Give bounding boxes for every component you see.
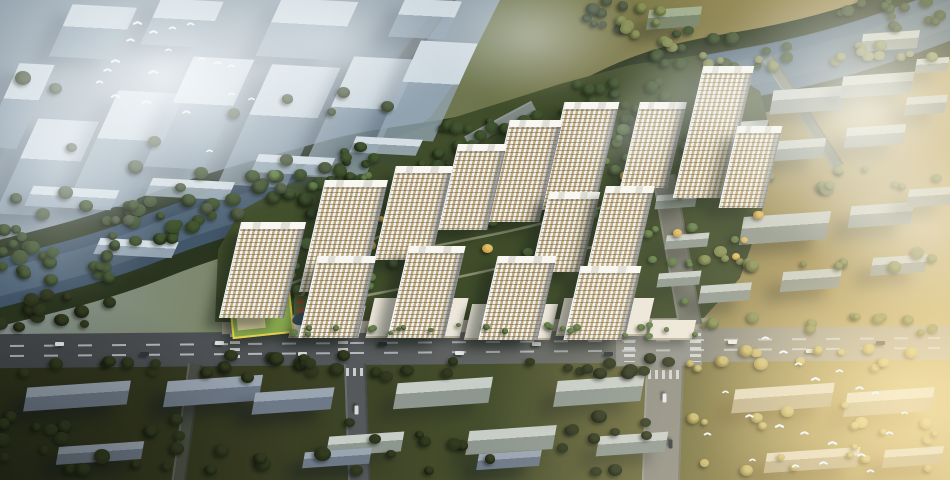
bird-icon — [857, 452, 866, 457]
bird-icon — [95, 79, 103, 84]
bird-icon — [227, 91, 235, 96]
bird-flocks-layer — [0, 0, 950, 480]
bird-icon — [149, 29, 158, 34]
bird-icon — [885, 430, 893, 435]
bird-icon — [749, 458, 756, 462]
bird-icon — [133, 20, 143, 26]
bird-icon — [126, 37, 135, 42]
bird-icon — [775, 423, 785, 429]
bird-icon — [794, 361, 802, 366]
bird-icon — [866, 468, 874, 473]
bird-icon — [227, 63, 235, 68]
bird-icon — [761, 335, 769, 340]
bird-icon — [855, 385, 864, 390]
bird-icon — [141, 99, 152, 105]
bird-icon — [248, 97, 255, 101]
bird-icon — [819, 460, 828, 465]
bird-icon — [111, 93, 121, 99]
bird-icon — [206, 149, 213, 153]
bird-icon — [871, 390, 879, 395]
bird-icon — [186, 21, 194, 26]
bird-icon — [703, 431, 711, 436]
bird-icon — [165, 48, 172, 52]
bird-icon — [103, 67, 112, 72]
bird-icon — [182, 109, 191, 114]
bird-icon — [828, 440, 838, 446]
bird-icon — [835, 368, 843, 373]
bird-icon — [800, 430, 809, 435]
bird-icon — [111, 58, 121, 64]
bird-icon — [811, 376, 821, 382]
bird-icon — [745, 413, 754, 418]
bird-icon — [168, 25, 176, 30]
bird-icon — [213, 60, 222, 65]
bird-icon — [779, 349, 788, 354]
bird-icon — [901, 411, 908, 415]
aerial-city-rendering — [0, 0, 950, 480]
bird-icon — [197, 56, 205, 61]
bird-icon — [791, 463, 799, 468]
bird-icon — [148, 69, 159, 75]
bird-icon — [722, 390, 729, 394]
